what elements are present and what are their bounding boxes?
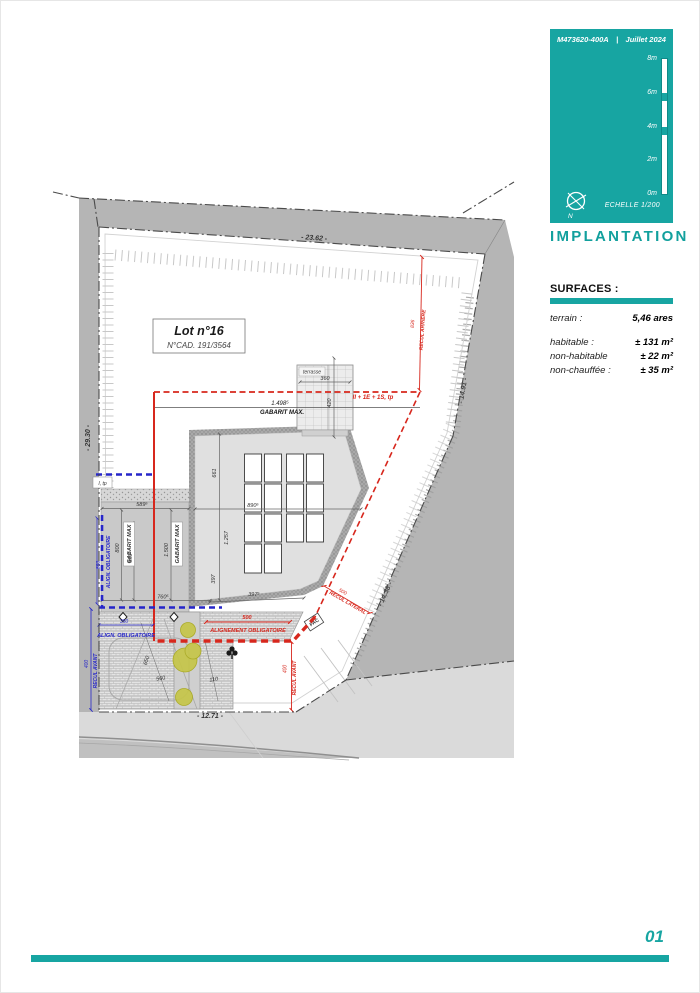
surfaces-heading: SURFACES :	[550, 283, 673, 295]
surface-row-non-habitable: non-habitable ± 22 m²	[550, 351, 673, 362]
svg-text:RECUL AVANT: RECUL AVANT	[93, 653, 99, 689]
svg-text:1.257: 1.257	[224, 530, 230, 545]
storeys-note: II + 1E + 1S, tp	[353, 395, 394, 401]
lot-label-box: Lot n°16 N°CAD. 191/3564	[153, 319, 245, 353]
scale-tick-0m: 0m	[627, 190, 657, 197]
svg-text:360: 360	[320, 376, 330, 382]
svg-text:RECUL LATERAL: RECUL LATERAL	[328, 590, 367, 616]
scale-tick-2m: 2m	[627, 156, 657, 163]
svg-text:661: 661	[212, 468, 218, 477]
terrace-label: terrasse	[303, 370, 321, 376]
sheet-title: IMPLANTATION	[550, 228, 673, 245]
itp-box: I, tp	[93, 477, 112, 488]
scale-caption: ECHELLE 1/200	[605, 202, 660, 209]
lot-name: Lot n°16	[174, 324, 224, 338]
scale-bar-segment	[662, 93, 667, 102]
gabarit-max-label-2: GABARIT MAX	[172, 522, 183, 566]
svg-text:589⁵: 589⁵	[136, 501, 148, 508]
title-block-header: M473620-400A | Juillet 2024	[557, 35, 666, 44]
svg-text:850: 850	[96, 561, 102, 570]
svg-text:397⁵: 397⁵	[248, 591, 260, 598]
title-block: M473620-400A | Juillet 2024 8m 6m 4m 2m …	[550, 29, 673, 223]
svg-text:420: 420	[327, 397, 333, 407]
doc-date: Juillet 2024	[626, 35, 666, 44]
svg-text:400: 400	[84, 660, 90, 669]
dim-bottom: - 12.71 -	[197, 713, 224, 720]
north-compass-icon: N	[558, 187, 598, 223]
scale-tick-8m: 8m	[627, 55, 657, 62]
surface-row-terrain: terrain : 5,46 ares	[550, 313, 673, 324]
scale-bar	[662, 59, 667, 194]
svg-text:650⁵: 650⁵	[127, 551, 134, 563]
header-separator: |	[616, 35, 618, 44]
svg-text:I, tp: I, tp	[98, 481, 107, 487]
surface-row-non-chauffee: non-chauffée : ± 35 m²	[550, 365, 673, 376]
svg-text:397: 397	[211, 573, 217, 583]
doc-reference: M473620-400A	[557, 35, 609, 44]
svg-text:760⁵: 760⁵	[157, 594, 169, 601]
scale-tick-6m: 6m	[627, 89, 657, 96]
pac-unit: PAC	[304, 613, 323, 631]
svg-text:ALIGN. OBLIGATOIRE: ALIGN. OBLIGATOIRE	[106, 535, 112, 589]
plan-sheet: terrasse	[0, 0, 700, 993]
svg-text:GABARIT MAX: GABARIT MAX	[175, 524, 181, 563]
svg-text:RECUL ARRIERE: RECUL ARRIERE	[419, 309, 428, 351]
svg-text:890⁵: 890⁵	[247, 502, 259, 509]
scale-tick-4m: 4m	[627, 123, 657, 130]
svg-text:1.500: 1.500	[164, 542, 170, 557]
svg-text:RECUL AVANT: RECUL AVANT	[292, 660, 298, 696]
surface-row-habitable: habitable : ± 131 m²	[550, 337, 673, 348]
svg-text:ALIGNEMENT OBLIGATOIRE: ALIGNEMENT OBLIGATOIRE	[209, 628, 286, 634]
scale-bar-segment	[662, 127, 667, 136]
page-number: 01	[645, 927, 664, 947]
svg-text:800: 800	[115, 542, 121, 552]
svg-text:ALIGN. OBLIGATOIRE: ALIGN. OBLIGATOIRE	[96, 633, 155, 639]
svg-text:350: 350	[120, 619, 129, 625]
svg-text:500: 500	[242, 615, 251, 621]
dim-left: - 29.30 -	[85, 424, 92, 451]
north-label: N	[568, 213, 573, 220]
surfaces-underline	[550, 298, 673, 304]
svg-text:836: 836	[410, 319, 417, 328]
lot-cadastre: N°CAD. 191/3564	[167, 341, 231, 350]
gabarit-max-text: GABARIT MAX.	[260, 410, 304, 416]
surfaces-panel: SURFACES : terrain : 5,46 ares habitable…	[550, 283, 673, 383]
svg-text:400: 400	[283, 665, 289, 674]
footer-bar	[31, 955, 669, 962]
gabarit-level: 1.498⁵	[271, 400, 289, 407]
